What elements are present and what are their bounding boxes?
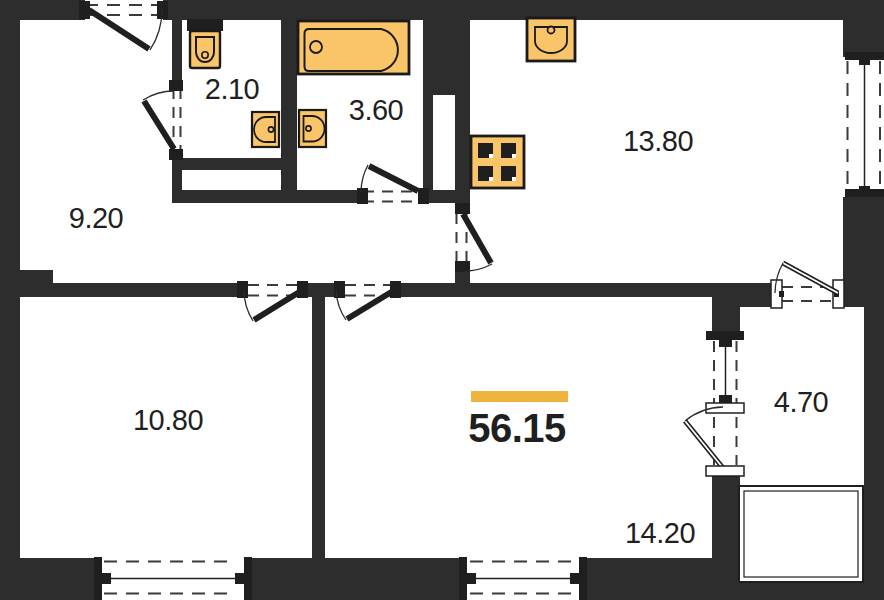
wall-wc-bottom	[172, 158, 297, 170]
kitchen-door-hinge	[455, 203, 470, 214]
wall-bottom-2	[250, 558, 462, 600]
balcony-top-window-latch-left	[779, 291, 784, 297]
wall-wc-left-upper	[172, 20, 182, 88]
wall-balcony-left-upper	[712, 283, 740, 337]
wall-balcony-top-right	[844, 283, 884, 307]
room-label-kitchen: 13.80	[623, 125, 693, 157]
room-hallway	[20, 20, 172, 283]
room-label-living-room: 14.20	[625, 517, 695, 549]
wall-balcony-bottom	[738, 583, 884, 600]
stove-burner-3-mark	[489, 177, 493, 181]
stove-burner-2-mark	[512, 154, 516, 158]
stove	[471, 136, 524, 188]
bedroom-window-square-right	[235, 573, 244, 584]
room-label-hallway: 9.20	[69, 202, 123, 234]
wc-door-opening	[174, 88, 181, 150]
room-label-bathroom: 3.60	[349, 94, 403, 126]
kitchen-window-square-bottom	[859, 186, 870, 195]
wc-sink	[252, 112, 279, 147]
wall-right-mid	[843, 197, 884, 283]
bedroom-door-jamb	[237, 281, 248, 298]
room-label-wc: 2.10	[205, 73, 259, 105]
wall-shaft-left	[423, 95, 433, 190]
stove-burner-4-mark	[512, 177, 516, 181]
wall-balcony-left-lower	[712, 472, 740, 583]
living-room-window-square-right	[570, 573, 579, 584]
bathtub	[298, 21, 409, 74]
bedroom-window	[94, 557, 252, 600]
wall-balcony-right	[864, 283, 884, 600]
bedroom-window-dashes	[104, 562, 235, 594]
floor-plan-drawing: 9.20 2.10 3.60 13.80 10.80 14.20 4.70 56…	[0, 0, 884, 600]
wall-main-3	[395, 283, 712, 297]
bathroom-door-opening	[363, 192, 419, 202]
wall-bottom-1	[0, 558, 95, 600]
living-room-window-square-left	[467, 573, 476, 584]
total-area-accent-bar	[471, 391, 568, 402]
room-balcony	[740, 307, 864, 583]
wc-door-jamb	[169, 80, 183, 91]
bedroom-window-square-left	[102, 573, 111, 584]
total-area-label: 56.15	[468, 406, 566, 450]
living-room-window	[459, 557, 587, 600]
room-label-bedroom: 10.80	[133, 404, 203, 436]
entrance-door-hinge	[79, 1, 90, 19]
living-room-window-post-left	[459, 557, 467, 600]
wc-door-hinge	[169, 149, 183, 160]
wall-kitchen-left-upper	[455, 20, 470, 212]
bathroom-door-hinge	[418, 188, 429, 204]
wall-left	[0, 0, 20, 600]
wall-bedroom-living-divider	[312, 297, 325, 560]
floor-plan: 9.20 2.10 3.60 13.80 10.80 14.20 4.70 56…	[0, 0, 884, 600]
wall-right-top	[843, 0, 884, 57]
balcony-door-threshold	[706, 466, 744, 476]
wall-balcony-top-left	[740, 283, 771, 307]
living-room-window-post-right	[579, 557, 587, 600]
toilet-tank	[187, 19, 223, 31]
bedroom-window-post-right	[244, 557, 252, 600]
kitchen-sink-faucet	[548, 27, 555, 34]
living-room-door-jamb	[334, 281, 345, 298]
stove-burner-1-mark	[489, 154, 493, 158]
room-label-balcony: 4.70	[774, 386, 828, 418]
bedroom-door-opening	[248, 285, 297, 296]
wall-top-right	[163, 0, 884, 20]
bathroom-sink	[299, 110, 326, 147]
kitchen-window	[845, 52, 884, 197]
living-room-window-dashes	[470, 562, 571, 594]
wall-pier-left	[20, 270, 53, 297]
bedroom-window-post-left	[94, 557, 102, 600]
bathroom-door-jamb	[357, 188, 368, 204]
kitchen-sink	[527, 18, 575, 61]
kitchen-window-square-top	[859, 56, 870, 65]
toilet	[187, 19, 223, 68]
wall-hall-top-left	[172, 190, 363, 203]
